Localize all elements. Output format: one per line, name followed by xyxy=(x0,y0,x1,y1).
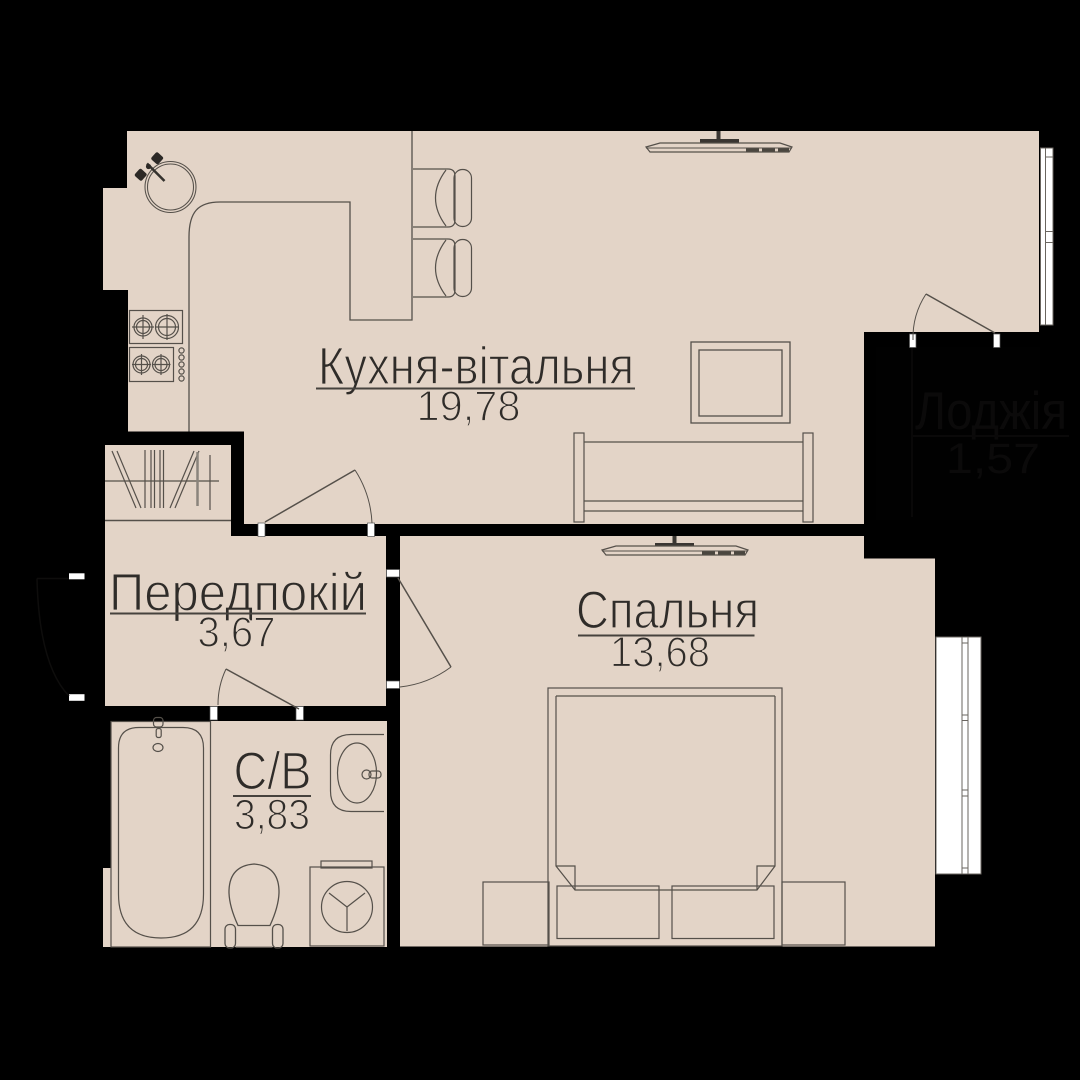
svg-text:3,83: 3,83 xyxy=(234,791,310,839)
svg-text:19,78: 19,78 xyxy=(417,383,521,431)
svg-text:3,67: 3,67 xyxy=(198,609,276,657)
svg-text:1,57: 1,57 xyxy=(946,435,1040,483)
svg-text:Лоджія: Лоджія xyxy=(915,382,1067,441)
